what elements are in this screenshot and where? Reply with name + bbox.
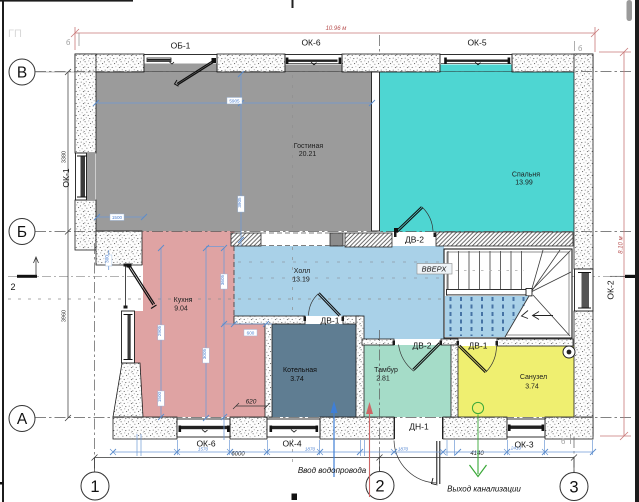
svg-text:1500: 1500 — [157, 391, 162, 402]
svg-text:20.21: 20.21 — [299, 151, 317, 158]
svg-text:5905: 5905 — [229, 99, 240, 104]
svg-text:3.74: 3.74 — [525, 384, 539, 391]
svg-text:ОК-6: ОК-6 — [301, 38, 320, 48]
svg-text:3: 3 — [569, 479, 578, 497]
svg-text:3605: 3605 — [220, 274, 225, 285]
svg-text:В: В — [17, 65, 27, 82]
svg-text:ДВ-2: ДВ-2 — [405, 235, 424, 245]
svg-text:1500: 1500 — [112, 215, 123, 220]
svg-text:б: б — [578, 44, 582, 53]
svg-text:ДВ-1: ДВ-1 — [469, 341, 488, 351]
svg-text:Санузел: Санузел — [520, 374, 547, 381]
svg-text:3905: 3905 — [237, 197, 242, 208]
svg-text:1870: 1870 — [398, 447, 409, 452]
svg-text:13.99: 13.99 — [515, 180, 533, 187]
svg-text:ОК-5: ОК-5 — [467, 38, 486, 48]
svg-text:300: 300 — [105, 255, 110, 263]
svg-text:ДВ-2: ДВ-2 — [413, 341, 432, 351]
svg-text:3005: 3005 — [202, 348, 207, 359]
svg-text:ОБ-1: ОБ-1 — [171, 41, 191, 51]
svg-text:Кухня: Кухня — [174, 297, 193, 304]
svg-text:2: 2 — [10, 282, 15, 292]
svg-text:6000: 6000 — [231, 452, 245, 458]
svg-text:Холл: Холл — [294, 268, 311, 275]
svg-text:б: б — [66, 38, 70, 47]
svg-text:ОК-4: ОК-4 — [282, 439, 301, 449]
svg-text:3.74: 3.74 — [290, 376, 304, 383]
svg-text:3380: 3380 — [62, 151, 68, 163]
svg-text:Гостиная: Гостиная — [294, 143, 324, 150]
svg-text:ДВ-1: ДВ-1 — [321, 316, 340, 326]
svg-text:2905: 2905 — [157, 325, 162, 336]
svg-text:8.10 м: 8.10 м — [619, 236, 625, 253]
svg-text:ДН-1: ДН-1 — [409, 422, 429, 432]
svg-text:13.19: 13.19 — [292, 277, 310, 284]
svg-text:3960: 3960 — [62, 310, 68, 322]
svg-text:ОК-2: ОК-2 — [606, 280, 616, 299]
svg-text:б: б — [561, 437, 565, 446]
svg-text:ВВЕРХ: ВВЕРХ — [422, 265, 448, 274]
svg-text:Б: Б — [17, 224, 27, 241]
svg-text:1870: 1870 — [305, 447, 316, 452]
svg-text:Спальня: Спальня — [512, 172, 540, 179]
svg-text:Выход канализации: Выход канализации — [447, 485, 521, 494]
svg-text:ОК-6: ОК-6 — [196, 439, 215, 449]
svg-text:ГП: ГП — [8, 28, 22, 40]
svg-text:1: 1 — [90, 478, 99, 496]
svg-text:А: А — [17, 411, 28, 428]
svg-text:10.96 м: 10.96 м — [326, 26, 347, 32]
svg-text:Котельная: Котельная — [283, 367, 317, 374]
svg-text:ОК-1: ОК-1 — [61, 168, 71, 187]
svg-text:Ввод водопровода: Ввод водопровода — [298, 466, 367, 475]
svg-text:600: 600 — [247, 331, 255, 336]
svg-text:2.81: 2.81 — [376, 376, 390, 383]
svg-text:620: 620 — [246, 399, 257, 406]
svg-text:9.04: 9.04 — [174, 306, 188, 313]
svg-text:2: 2 — [375, 478, 384, 496]
svg-text:Тамбур: Тамбур — [374, 366, 398, 374]
svg-text:ОК-3: ОК-3 — [514, 440, 533, 450]
